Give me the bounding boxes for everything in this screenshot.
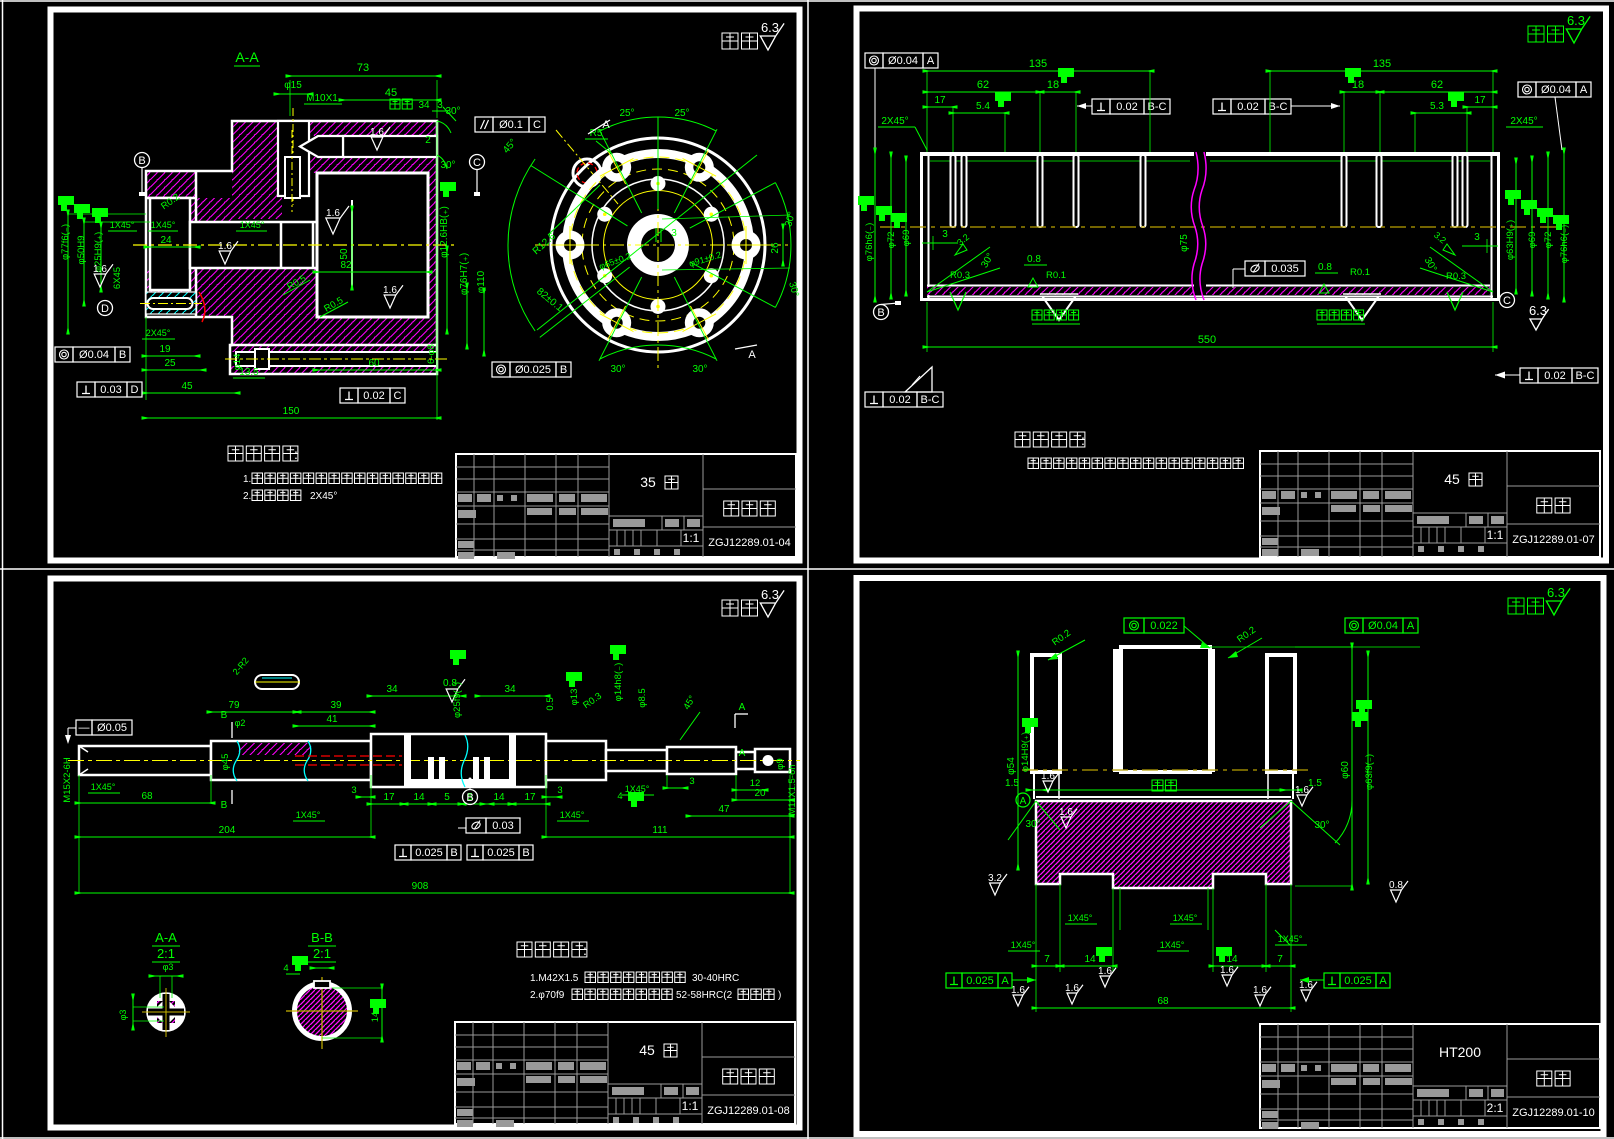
svg-text:2X45°: 2X45° <box>146 328 171 338</box>
svg-text:—: — <box>79 722 90 734</box>
svg-text:B: B <box>119 349 126 361</box>
svg-text:0.02: 0.02 <box>363 390 384 402</box>
svg-text:φ14h8(₋): φ14h8(₋) <box>613 663 624 702</box>
svg-text:14: 14 <box>1084 954 1096 965</box>
svg-text:5: 5 <box>444 792 450 803</box>
svg-text:A: A <box>1379 975 1387 987</box>
svg-text:): ) <box>778 990 781 1001</box>
svg-text::: : <box>294 446 298 462</box>
svg-text:B: B <box>450 847 457 859</box>
svg-text:6.3: 6.3 <box>761 587 779 602</box>
svg-text:M10X1: M10X1 <box>306 93 338 104</box>
svg-text:14: 14 <box>413 792 425 803</box>
svg-text:41: 41 <box>326 714 338 725</box>
svg-text:A-A: A-A <box>155 930 177 945</box>
svg-text:35: 35 <box>640 474 656 490</box>
svg-text:A-A: A-A <box>235 49 259 65</box>
svg-text:3: 3 <box>437 100 443 111</box>
svg-text:C: C <box>1503 295 1511 307</box>
svg-text:1:1: 1:1 <box>683 531 700 545</box>
svg-text:φ8.5: φ8.5 <box>637 688 648 707</box>
svg-text:6X45: 6X45 <box>112 267 123 289</box>
svg-text:68: 68 <box>141 791 153 802</box>
svg-text:D: D <box>101 303 109 315</box>
svg-text:φ69: φ69 <box>1527 232 1538 249</box>
svg-text:3: 3 <box>557 785 562 796</box>
svg-text:111: 111 <box>652 825 668 836</box>
svg-text:φ25f9(₋): φ25f9(₋) <box>452 682 463 718</box>
svg-text:19: 19 <box>159 344 171 355</box>
svg-text:0.025: 0.025 <box>487 847 515 859</box>
svg-text:A: A <box>739 748 746 759</box>
svg-text:34: 34 <box>504 684 516 695</box>
svg-text:1.6: 1.6 <box>1065 983 1079 994</box>
svg-text:1X45°: 1X45° <box>1011 940 1036 950</box>
svg-text:1:1: 1:1 <box>682 1099 699 1113</box>
svg-text:M15X2-6H: M15X2-6H <box>62 757 73 803</box>
svg-text:1.6: 1.6 <box>1220 965 1234 976</box>
svg-text:1X45°: 1X45° <box>110 220 135 230</box>
svg-text:B: B <box>466 792 473 804</box>
svg-text:R0.1: R0.1 <box>1350 267 1370 278</box>
svg-text:0.025: 0.025 <box>966 975 994 987</box>
svg-text:φ54: φ54 <box>1006 757 1017 775</box>
svg-text:B: B <box>221 710 228 721</box>
svg-text:3: 3 <box>942 229 948 240</box>
svg-text:A: A <box>739 702 746 713</box>
svg-text:1.6: 1.6 <box>326 208 340 219</box>
svg-text:φ63H9(₊): φ63H9(₊) <box>1505 220 1516 260</box>
svg-text:79: 79 <box>228 700 240 711</box>
svg-text:2:1: 2:1 <box>157 946 175 961</box>
svg-text:ZGJ12289.01-07: ZGJ12289.01-07 <box>1512 534 1595 546</box>
svg-text:1.6: 1.6 <box>1041 771 1055 782</box>
svg-text:R0.1: R0.1 <box>1046 270 1066 281</box>
svg-text:1.M42X1.5: 1.M42X1.5 <box>530 973 579 984</box>
svg-text:0.02: 0.02 <box>889 394 910 406</box>
svg-text:1X45°: 1X45° <box>296 810 321 820</box>
svg-text:5.3: 5.3 <box>1430 101 1444 112</box>
svg-text:φ76H7(₊): φ76H7(₊) <box>459 253 470 295</box>
svg-text:6.3: 6.3 <box>761 20 779 35</box>
svg-text:0.02: 0.02 <box>1116 101 1137 113</box>
svg-text:2X45°: 2X45° <box>881 116 908 127</box>
svg-text:0.025: 0.025 <box>1344 975 1372 987</box>
svg-text:A: A <box>927 55 935 67</box>
svg-text:1X45°: 1X45° <box>1173 913 1198 923</box>
svg-text:2.: 2. <box>243 491 251 502</box>
svg-text:D: D <box>131 384 139 396</box>
svg-text:Ø0.05: Ø0.05 <box>97 722 127 734</box>
svg-text:B-C: B-C <box>1576 370 1595 382</box>
svg-text:1.5: 1.5 <box>1005 778 1019 789</box>
svg-text:25°: 25° <box>674 108 689 119</box>
svg-text:φ76h6(₋): φ76h6(₋) <box>864 223 875 262</box>
svg-text:B: B <box>560 364 567 376</box>
svg-text:ZGJ12289.01-04: ZGJ12289.01-04 <box>708 537 791 549</box>
svg-text:0.02: 0.02 <box>1544 370 1565 382</box>
svg-text:.: . <box>1217 460 1220 471</box>
svg-text:B-B: B-B <box>311 930 333 945</box>
svg-text:φ69: φ69 <box>901 230 912 247</box>
svg-text:17: 17 <box>1474 95 1486 106</box>
svg-text:68: 68 <box>1157 996 1169 1007</box>
svg-text:A: A <box>1020 796 1027 807</box>
svg-text:5.4: 5.4 <box>976 101 990 112</box>
svg-text:R0.3: R0.3 <box>1446 271 1466 282</box>
svg-text:φ50H9: φ50H9 <box>76 236 87 265</box>
svg-text:0.8: 0.8 <box>1318 262 1332 273</box>
svg-text:52-58HRC(2: 52-58HRC(2 <box>676 990 733 1001</box>
svg-text:2:1: 2:1 <box>1487 1101 1504 1115</box>
svg-text:1:1: 1:1 <box>1487 528 1504 542</box>
svg-text:Ø0.04: Ø0.04 <box>79 349 109 361</box>
svg-text:φ72: φ72 <box>1543 232 1554 249</box>
svg-text:39: 39 <box>330 700 342 711</box>
svg-text:30°: 30° <box>692 364 707 375</box>
svg-text:3: 3 <box>1474 232 1480 243</box>
svg-text:R0.3: R0.3 <box>950 270 970 281</box>
svg-text:1.6: 1.6 <box>218 241 232 252</box>
svg-text:φ3: φ3 <box>163 962 174 972</box>
svg-text:17: 17 <box>524 792 536 803</box>
svg-text::: : <box>583 942 587 958</box>
svg-text:φ14: φ14 <box>232 354 243 371</box>
svg-text:20: 20 <box>754 788 766 799</box>
svg-text:30°: 30° <box>610 364 625 375</box>
svg-text:6.3: 6.3 <box>1529 303 1547 318</box>
svg-text:26: 26 <box>770 242 781 254</box>
svg-text:1.: 1. <box>243 474 251 485</box>
svg-text:60: 60 <box>368 358 380 369</box>
svg-text:1.5: 1.5 <box>1308 778 1322 789</box>
svg-text:φ9: φ9 <box>775 758 786 769</box>
svg-text:φ14H9(₊): φ14H9(₊) <box>1020 732 1031 772</box>
svg-text:1X45°: 1X45° <box>560 810 585 820</box>
svg-text:1.6: 1.6 <box>1098 966 1112 977</box>
svg-text:30°: 30° <box>1025 819 1040 830</box>
svg-text:3.2: 3.2 <box>988 873 1002 884</box>
svg-text:2X45°: 2X45° <box>310 491 337 502</box>
svg-text:24: 24 <box>160 235 172 246</box>
svg-text:0.03: 0.03 <box>492 820 513 832</box>
svg-text:φ75: φ75 <box>1179 234 1190 252</box>
svg-text:φ72: φ72 <box>886 232 897 249</box>
svg-text:47: 47 <box>718 804 730 815</box>
svg-text:4: 4 <box>283 963 288 974</box>
svg-text:B: B <box>522 847 529 859</box>
svg-text:ZGJ12289.01-08: ZGJ12289.01-08 <box>707 1105 790 1117</box>
svg-text:A: A <box>1001 975 1009 987</box>
svg-text:135: 135 <box>1029 58 1047 70</box>
svg-text:C: C <box>473 157 481 169</box>
svg-text:14: 14 <box>493 792 505 803</box>
svg-text:ZGJ12289.01-10: ZGJ12289.01-10 <box>1512 1107 1595 1119</box>
svg-text:B-C: B-C <box>921 394 940 406</box>
svg-text:3: 3 <box>689 776 694 787</box>
svg-text:73: 73 <box>357 62 369 74</box>
svg-text:Ø0.1: Ø0.1 <box>499 119 523 131</box>
svg-text:30-40HRC: 30-40HRC <box>692 973 739 984</box>
svg-text:φ3: φ3 <box>118 1010 128 1021</box>
svg-text:2X45°: 2X45° <box>1510 116 1537 127</box>
svg-text:φ2: φ2 <box>235 718 246 728</box>
svg-text:1.6: 1.6 <box>1295 785 1309 796</box>
svg-text:φ77f6(₋): φ77f6(₋) <box>60 224 71 260</box>
svg-text:1X45°: 1X45° <box>91 782 116 792</box>
svg-text:φ13: φ13 <box>569 689 580 706</box>
svg-text:30°: 30° <box>440 160 455 171</box>
svg-text:4: 4 <box>617 791 622 802</box>
svg-text:A: A <box>1407 620 1415 632</box>
svg-text:2.φ70f9: 2.φ70f9 <box>530 990 565 1001</box>
svg-text:1X45°: 1X45° <box>1068 913 1093 923</box>
svg-text:2:1: 2:1 <box>313 946 331 961</box>
svg-text:C: C <box>533 119 541 131</box>
svg-text::: : <box>1081 432 1085 448</box>
svg-text:Ø0.04: Ø0.04 <box>888 55 918 67</box>
svg-text:34: 34 <box>418 100 430 111</box>
svg-text:φ60: φ60 <box>1340 761 1351 779</box>
svg-text:0.025: 0.025 <box>415 847 443 859</box>
svg-text:φ15: φ15 <box>284 80 302 91</box>
svg-text:0.022: 0.022 <box>1150 620 1178 632</box>
svg-text:φ45: φ45 <box>220 754 231 771</box>
svg-text:17: 17 <box>383 792 395 803</box>
svg-text:150: 150 <box>283 406 300 417</box>
svg-text:1.6: 1.6 <box>1059 807 1073 818</box>
svg-text:1X45°: 1X45° <box>240 220 265 230</box>
svg-text:φ110: φ110 <box>476 270 487 293</box>
svg-text:6.3: 6.3 <box>1567 13 1585 28</box>
svg-text:1.6: 1.6 <box>93 264 107 275</box>
svg-text:0.8: 0.8 <box>1389 880 1403 891</box>
svg-text:550: 550 <box>1198 334 1216 346</box>
svg-text:0.02: 0.02 <box>1237 101 1258 113</box>
svg-text:45: 45 <box>639 1042 655 1058</box>
svg-text:C: C <box>394 390 402 402</box>
svg-text:6.3: 6.3 <box>1547 585 1565 600</box>
svg-text:B: B <box>877 307 884 319</box>
svg-text:135: 135 <box>1373 58 1391 70</box>
svg-text:B: B <box>138 155 145 167</box>
svg-text:Ø0.025: Ø0.025 <box>515 364 551 376</box>
svg-text:φ63f9(₋): φ63f9(₋) <box>1364 754 1375 790</box>
svg-text:1X45°: 1X45° <box>151 220 176 230</box>
svg-text:A: A <box>1580 84 1588 96</box>
svg-text:62: 62 <box>977 79 989 91</box>
svg-text:1.6: 1.6 <box>1253 985 1267 996</box>
svg-text:Ø0.04: Ø0.04 <box>1541 84 1571 96</box>
svg-text:φ76h6(₋): φ76h6(₋) <box>1559 225 1570 264</box>
svg-text:1.6: 1.6 <box>370 127 384 138</box>
svg-text:0.03: 0.03 <box>100 384 121 396</box>
svg-text:1.6: 1.6 <box>1011 985 1025 996</box>
svg-text:34: 34 <box>386 684 398 695</box>
svg-text:25: 25 <box>164 358 176 369</box>
svg-text:1X45°: 1X45° <box>1160 940 1185 950</box>
svg-text:3: 3 <box>671 228 677 239</box>
svg-text:908: 908 <box>412 881 429 892</box>
svg-text:1.6: 1.6 <box>383 285 397 296</box>
svg-text:B-C: B-C <box>1269 101 1288 113</box>
svg-text:M11X1.5-6h: M11X1.5-6h <box>787 764 798 815</box>
svg-text:25°: 25° <box>619 108 634 119</box>
svg-text:62: 62 <box>1431 79 1443 91</box>
svg-text:0.8: 0.8 <box>1027 254 1041 265</box>
svg-text:45: 45 <box>181 381 193 392</box>
svg-text:Ø0.04: Ø0.04 <box>1368 620 1398 632</box>
svg-text:45: 45 <box>1444 471 1460 487</box>
svg-text:1X45°: 1X45° <box>1278 934 1303 944</box>
svg-text:A: A <box>748 349 756 361</box>
svg-text:7: 7 <box>1044 954 1050 965</box>
svg-text:6-φ8: 6-φ8 <box>426 344 437 364</box>
svg-text:7: 7 <box>1277 954 1283 965</box>
svg-text:φ12.6HB(₊): φ12.6HB(₊) <box>439 206 450 258</box>
svg-text:0.035: 0.035 <box>1271 263 1299 275</box>
svg-text:45: 45 <box>385 87 397 99</box>
svg-text:17: 17 <box>934 95 946 106</box>
svg-text:R5: R5 <box>590 128 603 139</box>
svg-text:2: 2 <box>425 135 431 146</box>
svg-text:3: 3 <box>351 785 356 796</box>
svg-text:204: 204 <box>219 825 236 836</box>
svg-text:18: 18 <box>1047 79 1059 91</box>
svg-text:B: B <box>221 800 228 811</box>
svg-text:0.5: 0.5 <box>545 697 556 710</box>
svg-text:50: 50 <box>339 248 350 260</box>
svg-text:82: 82 <box>340 260 352 271</box>
svg-text:HT200: HT200 <box>1439 1044 1481 1060</box>
